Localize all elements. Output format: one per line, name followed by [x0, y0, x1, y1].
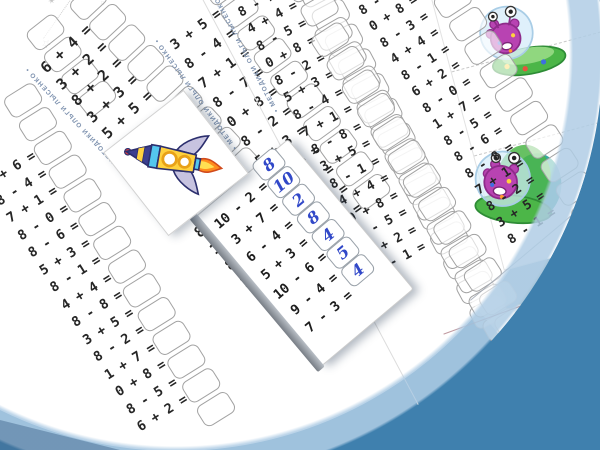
empty-answer-box — [584, 216, 600, 256]
empty-answer-box — [494, 330, 537, 369]
empty-answer-box — [507, 325, 550, 365]
white-circle-clip: ☆✶✧✶✦☆·✶✧☆·✶✧☆✶·☆✶✧· 2 + 6 =8 - 4 =7 + 1… — [0, 0, 600, 450]
worksheet-photo-scene: ☆✶✧✶✦☆·✶✧☆·✶✧☆✶·☆✶✧· 2 + 6 =8 - 4 =7 + 1… — [0, 0, 600, 450]
